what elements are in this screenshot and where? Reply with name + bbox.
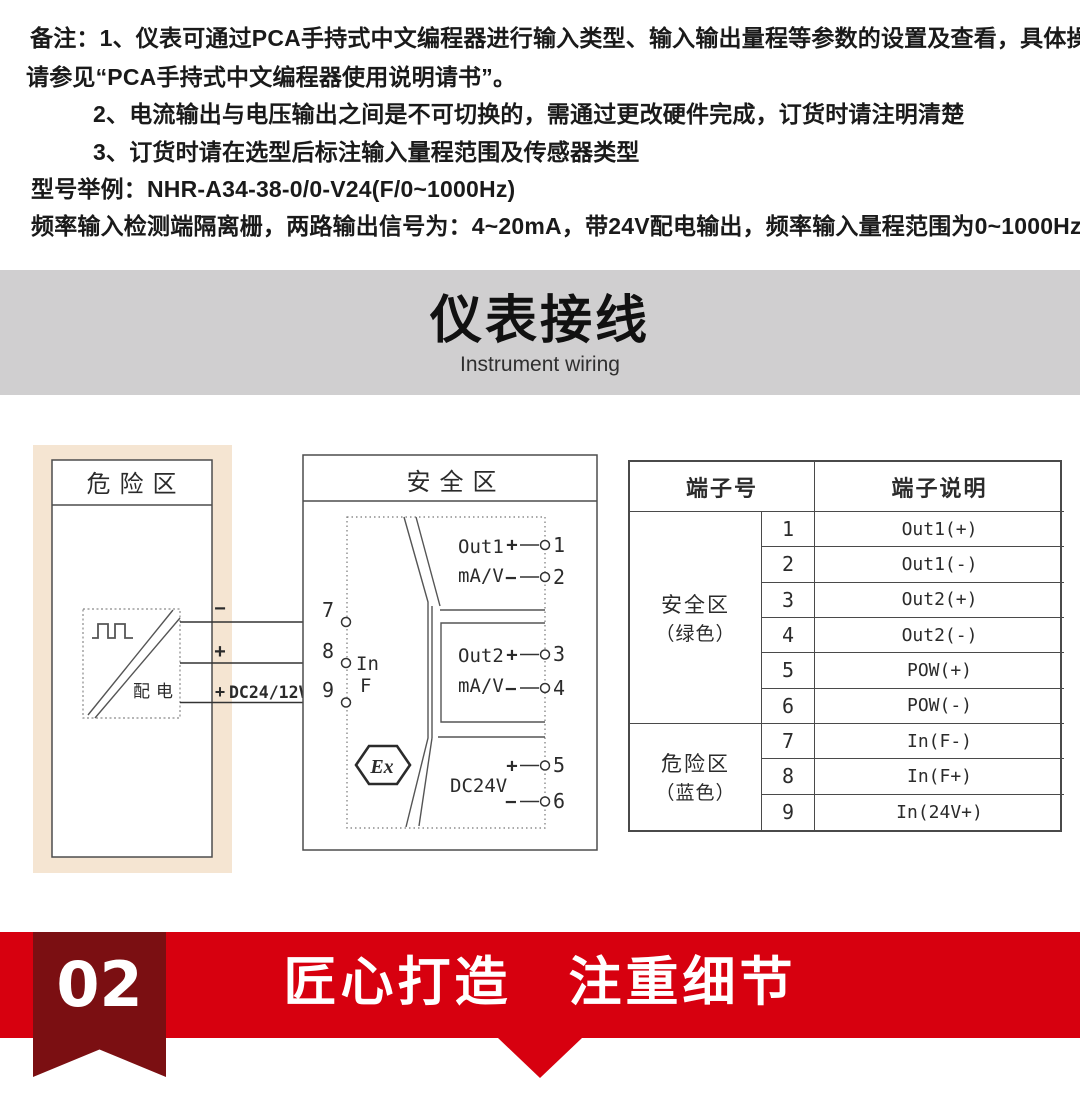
terminal-desc-cell: In(F-) (815, 724, 1064, 759)
terminal-desc-cell: POW(-) (815, 689, 1064, 724)
terminal-8-label: 8 (322, 639, 334, 663)
terminal-num-cell: 2 (762, 547, 815, 582)
safe-zone-title: 安全区 (407, 469, 506, 496)
footer-ribbon: 02 (33, 932, 166, 1077)
section-title: 仪表接线 (0, 270, 1080, 347)
wire3-plus-label: + (215, 682, 226, 702)
wire-plus-label: + (214, 641, 226, 663)
out2-plus-sign: + (506, 644, 517, 666)
footer-section-number: 02 (33, 953, 166, 1017)
out2-unit: mA/V (458, 675, 504, 697)
terminal-3-label: 3 (553, 642, 565, 666)
model-example-line: 型号举例：NHR-A34-38-0/0-V24(F/0~1000Hz) (31, 170, 515, 204)
dc24v-minus-sign: − (505, 791, 516, 813)
group-hazard-zone-cell: 危险区 （蓝色） (630, 724, 762, 830)
section-subtitle: Instrument wiring (0, 347, 1080, 377)
wire3-voltage-label: DC24/12V (229, 683, 309, 702)
hazard-zone-box (52, 460, 212, 857)
group-safe-zone-cell: 安全区 （绿色） (630, 512, 762, 724)
group-safe-zone-color: （绿色） (655, 619, 735, 646)
terminal-num-cell: 1 (762, 512, 815, 547)
table-header-terminal-desc: 端子说明 (815, 462, 1064, 512)
section-banner: 仪表接线 Instrument wiring (0, 270, 1080, 395)
terminal-desc-cell: Out1(-) (815, 547, 1064, 582)
terminal-num-cell: 7 (762, 724, 815, 759)
terminal-circle-9 (342, 698, 351, 707)
terminal-num-cell: 3 (762, 583, 815, 618)
terminal-desc-cell: POW(+) (815, 653, 1064, 688)
terminal-circle-3 (541, 650, 550, 659)
group-safe-zone-name: 安全区 (661, 589, 730, 619)
terminal-circle-5 (541, 761, 550, 770)
terminal-circle-8 (342, 659, 351, 668)
out2-minus-sign: − (505, 678, 516, 700)
out2-name: Out2 (458, 645, 504, 667)
input-in-label: In (356, 653, 379, 675)
note-line-4: 3、订货时请在选型后标注输入量程范围及传感器类型 (93, 133, 640, 167)
terminal-5-label: 5 (553, 753, 565, 777)
footer-banner-arrow (498, 1038, 582, 1078)
terminal-desc-cell: Out2(+) (815, 583, 1064, 618)
terminal-desc-cell: In(24V+) (815, 795, 1064, 830)
out1-unit: mA/V (458, 565, 504, 587)
terminal-circle-7 (342, 618, 351, 627)
terminal-num-cell: 8 (762, 759, 815, 794)
group-hazard-zone-color: （蓝色） (655, 778, 735, 805)
terminal-9-label: 9 (322, 678, 334, 702)
terminal-num-cell: 4 (762, 618, 815, 653)
terminal-desc-cell: Out1(+) (815, 512, 1064, 547)
out1-name: Out1 (458, 536, 504, 558)
terminal-2-label: 2 (553, 565, 565, 589)
terminal-num-cell: 6 (762, 689, 815, 724)
wire-minus-label: − (214, 598, 226, 620)
terminal-desc-cell: In(F+) (815, 759, 1064, 794)
group-hazard-zone-name: 危险区 (661, 748, 730, 778)
terminal-num-cell: 9 (762, 795, 815, 830)
note-line-1: 备注：1、仪表可通过PCA手持式中文编程器进行输入类型、输入输出量程等参数的设置… (30, 19, 1080, 53)
out1-minus-sign: − (505, 567, 516, 589)
terminal-4-label: 4 (553, 676, 565, 700)
terminal-desc-cell: Out2(-) (815, 618, 1064, 653)
note-line-3: 2、电流输出与电压输出之间是不可切换的，需通过更改硬件完成，订货时请注明清楚 (93, 95, 964, 129)
terminal-circle-4 (541, 684, 550, 693)
terminal-circle-2 (541, 573, 550, 582)
terminal-num-cell: 5 (762, 653, 815, 688)
note-line-2: 请参见“PCA手持式中文编程器使用说明请书”。 (26, 58, 516, 92)
out1-plus-sign: + (506, 534, 517, 556)
dc24v-plus-sign: + (506, 755, 517, 777)
terminal-circle-6 (541, 797, 550, 806)
terminal-7-label: 7 (322, 598, 334, 622)
terminal-circle-1 (541, 541, 550, 550)
terminal-table: 端子号 端子说明 安全区 （绿色） 危险区 （蓝色） 1 Out1(+) 2 O… (628, 460, 1062, 832)
model-description-line: 频率输入检测端隔离栅，两路输出信号为：4~20mA，带24V配电输出，频率输入量… (31, 207, 1080, 241)
table-header-terminal-no: 端子号 (630, 462, 815, 512)
dc24v-name: DC24V (450, 775, 507, 797)
power-distribution-label: 配电 (133, 682, 179, 701)
terminal-6-label: 6 (553, 789, 565, 813)
hazard-zone-title: 危险区 (87, 471, 186, 498)
ex-label: Ex (369, 756, 393, 778)
terminal-1-label: 1 (553, 533, 565, 557)
input-f-label: F (360, 675, 371, 697)
